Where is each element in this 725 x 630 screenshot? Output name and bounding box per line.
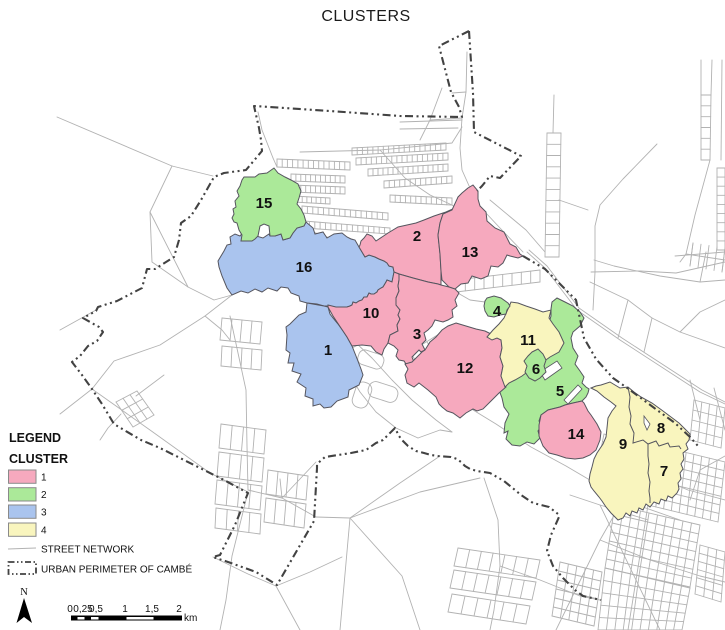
svg-text:12: 12 — [457, 360, 474, 377]
svg-text:5: 5 — [556, 383, 564, 400]
svg-text:4: 4 — [493, 303, 502, 320]
svg-text:0,5: 0,5 — [89, 604, 103, 615]
svg-text:URBAN PERIMETER OF CAMBÉ: URBAN PERIMETER OF CAMBÉ — [41, 563, 192, 576]
svg-text:3: 3 — [41, 508, 47, 519]
svg-text:1: 1 — [41, 473, 47, 484]
svg-text:11: 11 — [520, 332, 536, 349]
svg-text:1,5: 1,5 — [145, 604, 159, 615]
svg-text:CLUSTER: CLUSTER — [9, 452, 68, 466]
svg-text:9: 9 — [619, 436, 627, 453]
svg-text:8: 8 — [657, 420, 665, 437]
svg-text:14: 14 — [568, 426, 585, 443]
svg-text:2: 2 — [413, 228, 421, 245]
svg-text:CLUSTERS: CLUSTERS — [321, 8, 410, 25]
svg-text:4: 4 — [41, 526, 47, 537]
svg-text:1: 1 — [122, 604, 128, 615]
svg-text:6: 6 — [532, 361, 540, 378]
svg-text:13: 13 — [462, 244, 479, 261]
svg-text:km: km — [184, 613, 197, 624]
svg-text:STREET NETWORK: STREET NETWORK — [41, 545, 134, 556]
svg-text:LEGEND: LEGEND — [9, 431, 61, 445]
svg-text:3: 3 — [413, 326, 421, 343]
svg-text:2: 2 — [41, 490, 47, 501]
svg-text:10: 10 — [363, 305, 380, 322]
svg-text:7: 7 — [660, 463, 668, 480]
svg-text:N: N — [20, 587, 28, 598]
svg-text:16: 16 — [296, 259, 313, 276]
svg-text:1: 1 — [324, 342, 332, 359]
svg-text:15: 15 — [256, 195, 273, 212]
svg-text:2: 2 — [176, 604, 182, 615]
